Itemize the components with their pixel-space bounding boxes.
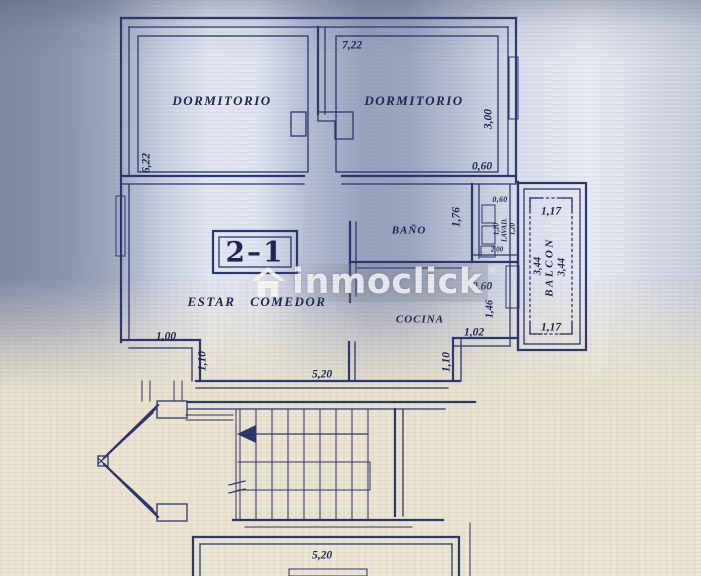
bay-glass — [98, 413, 153, 464]
dim-label: 1,00 — [156, 331, 176, 343]
laundry-fixture — [482, 205, 495, 223]
bay-pier — [157, 504, 187, 521]
middle-wall — [121, 176, 516, 184]
door-jamb — [291, 112, 306, 136]
dim-label: 6,22 — [141, 153, 153, 173]
unit-label: 2–1 — [226, 236, 285, 269]
dim-label: 0,60 — [472, 281, 492, 293]
dim-label: 1,76 — [451, 207, 463, 227]
dim-label: 1,46 — [484, 299, 495, 318]
dim-label: 2,00 — [490, 246, 504, 254]
room-label: BALCON — [544, 237, 556, 298]
dim-label: 5,20 — [312, 369, 332, 381]
bay-glass — [98, 458, 153, 509]
wall-solid — [289, 569, 367, 576]
dim-label: 3,44 — [556, 258, 567, 277]
dim-label: 1,20 — [493, 222, 501, 235]
dim-label: 1,17 — [541, 206, 562, 218]
break-mark — [229, 489, 245, 493]
staircase — [186, 402, 475, 527]
dim-label: 0,60 — [472, 161, 492, 173]
dim-label: 7,22 — [342, 40, 362, 52]
dim-label: 1,02 — [464, 327, 484, 339]
room-label: DORMITORIO — [363, 93, 463, 108]
dim-label: 1,10 — [197, 351, 209, 371]
dim-label: 3,44 — [532, 257, 543, 276]
room-label: COCINA — [396, 314, 444, 326]
room-label: BAÑO — [391, 225, 427, 237]
dim-label: 3,00 — [483, 109, 495, 130]
room-label: LAVAD. — [501, 218, 509, 243]
railing-corner — [560, 322, 572, 334]
bay-window — [98, 381, 187, 521]
dim-label: 1,17 — [541, 322, 562, 334]
plan-labels: 7,22 DORMITORIO DORMITORIO 6,22 3,00 0,6… — [141, 40, 568, 562]
floor-plan-drawing: 7,22 DORMITORIO DORMITORIO 6,22 3,00 0,6… — [0, 0, 701, 576]
dim-label: 0,60 — [492, 195, 507, 204]
room-label: ESTAR COMEDOR — [187, 294, 327, 309]
floor-plan-photo: 7,22 DORMITORIO DORMITORIO 6,22 3,00 0,6… — [0, 0, 701, 576]
bay-pier — [157, 401, 187, 418]
break-mark — [229, 481, 245, 485]
railing-corner — [560, 198, 572, 210]
room-label: DORMITORIO — [171, 93, 271, 108]
dim-label: 1,10 — [441, 352, 453, 372]
dim-label: 5,20 — [312, 550, 332, 562]
dim-label: 1,20 — [509, 222, 517, 235]
